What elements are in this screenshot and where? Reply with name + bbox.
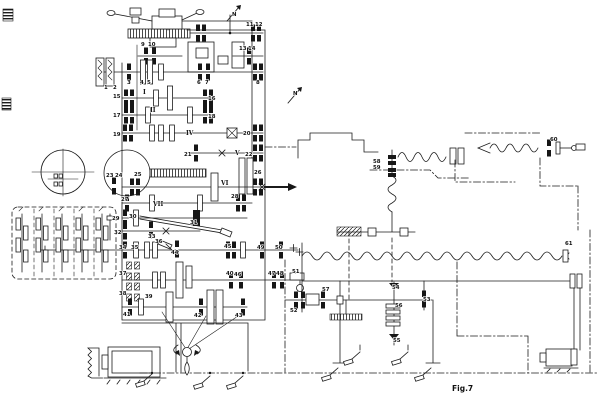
label-14: 14 xyxy=(248,46,256,52)
label-25: 25 xyxy=(134,172,142,178)
label-10: 10 xyxy=(148,42,156,48)
label-55: 55 xyxy=(393,338,401,344)
label-37: 37 xyxy=(119,271,127,277)
leadscrew-and-feedrod xyxy=(302,250,582,288)
label-56: 56 xyxy=(395,303,403,309)
gear-detail-circles xyxy=(32,149,150,196)
lever-handle xyxy=(185,362,190,375)
label-42: 42 xyxy=(194,313,202,319)
spindle-rack xyxy=(150,169,206,177)
label-40: 40 xyxy=(226,271,234,277)
label-4: 4 xyxy=(140,80,144,86)
label-45: 45 xyxy=(224,244,232,250)
feed-gearbox xyxy=(265,133,470,312)
shifter-handle-knob xyxy=(107,11,115,16)
label-VII: VII xyxy=(152,201,163,208)
change-gear-box xyxy=(12,207,116,279)
label-48: 48 xyxy=(276,271,284,277)
label-28: 28 xyxy=(231,194,239,200)
label-24: 24 xyxy=(115,173,123,179)
label-30: 30 xyxy=(129,214,137,220)
figure-caption: Fig.7 xyxy=(452,384,473,393)
headstock-gearbox xyxy=(41,8,304,372)
label-32: 32 xyxy=(114,230,122,236)
label-29: 29 xyxy=(112,216,120,222)
shift-lever xyxy=(220,228,232,237)
label-I: I xyxy=(143,89,146,96)
label-35: 35 xyxy=(131,245,139,251)
label-VI: VI xyxy=(220,180,229,187)
label-43: 43 xyxy=(235,313,243,319)
cone-pulley xyxy=(128,29,190,38)
label-59: 59 xyxy=(373,165,381,171)
bed-and-levers xyxy=(136,281,599,389)
label-IV: IV xyxy=(186,130,194,137)
label-2: 2 xyxy=(113,85,117,91)
label-II: II xyxy=(150,107,156,114)
handwheel-crank xyxy=(576,144,585,150)
label-17: 17 xyxy=(113,113,121,119)
label-46: 46 xyxy=(234,272,242,278)
label-34: 34 xyxy=(119,245,127,251)
label-22: 22 xyxy=(245,152,253,158)
label-11: 11 xyxy=(246,22,254,28)
ball-joint xyxy=(183,348,192,357)
label-60: 60 xyxy=(550,137,558,143)
margin-symbols xyxy=(2,9,13,110)
label-15: 15 xyxy=(113,94,121,100)
rack xyxy=(330,314,362,320)
label-16: 16 xyxy=(208,96,216,102)
label-31: 31 xyxy=(190,220,198,226)
label-41: 41 xyxy=(123,312,131,318)
label-5: 5 xyxy=(147,80,151,86)
label-N: N xyxy=(232,12,237,18)
label-52: 52 xyxy=(290,308,298,314)
shifter-handle-knob xyxy=(196,10,204,15)
label-V: V xyxy=(234,150,240,157)
label-18: 18 xyxy=(208,114,216,120)
tailstock xyxy=(455,133,585,230)
label-51: 51 xyxy=(292,269,300,275)
label-3: 3 xyxy=(127,80,131,86)
label-20: 20 xyxy=(243,131,251,137)
spindle-rotation-arrow xyxy=(288,183,297,191)
label-27: 27 xyxy=(121,197,129,203)
label-47: 47 xyxy=(268,271,276,277)
label-23: 23 xyxy=(106,173,114,179)
label-1: 1 xyxy=(104,85,108,91)
label-39: 39 xyxy=(145,294,153,300)
label-38: 38 xyxy=(119,291,127,297)
label-53: 53 xyxy=(423,297,431,303)
label-26: 26 xyxy=(254,170,262,176)
kinematic-diagram-page: 1234567891011121314151617181920212223242… xyxy=(0,0,600,402)
label-49: 49 xyxy=(257,245,265,251)
label-57: 57 xyxy=(322,287,330,293)
apron xyxy=(285,260,528,373)
thread-dial xyxy=(297,285,304,292)
label-44: 44 xyxy=(171,250,179,256)
label-50: 50 xyxy=(275,245,283,251)
label-9: 9 xyxy=(141,42,145,48)
label-19: 19 xyxy=(113,132,121,138)
label-12: 12 xyxy=(255,22,263,28)
label-7: 7 xyxy=(205,80,209,86)
lathe-kinematic-diagram: 1234567891011121314151617181920212223242… xyxy=(0,0,600,402)
label-61: 61 xyxy=(565,241,573,247)
label-8: 8 xyxy=(256,80,260,86)
label-54: 54 xyxy=(392,285,400,291)
main-motor xyxy=(88,347,166,384)
label-36: 36 xyxy=(155,239,163,245)
label-21: 21 xyxy=(184,152,192,158)
label-N: N xyxy=(293,91,298,97)
label-6: 6 xyxy=(197,80,201,86)
label-13: 13 xyxy=(239,46,247,52)
